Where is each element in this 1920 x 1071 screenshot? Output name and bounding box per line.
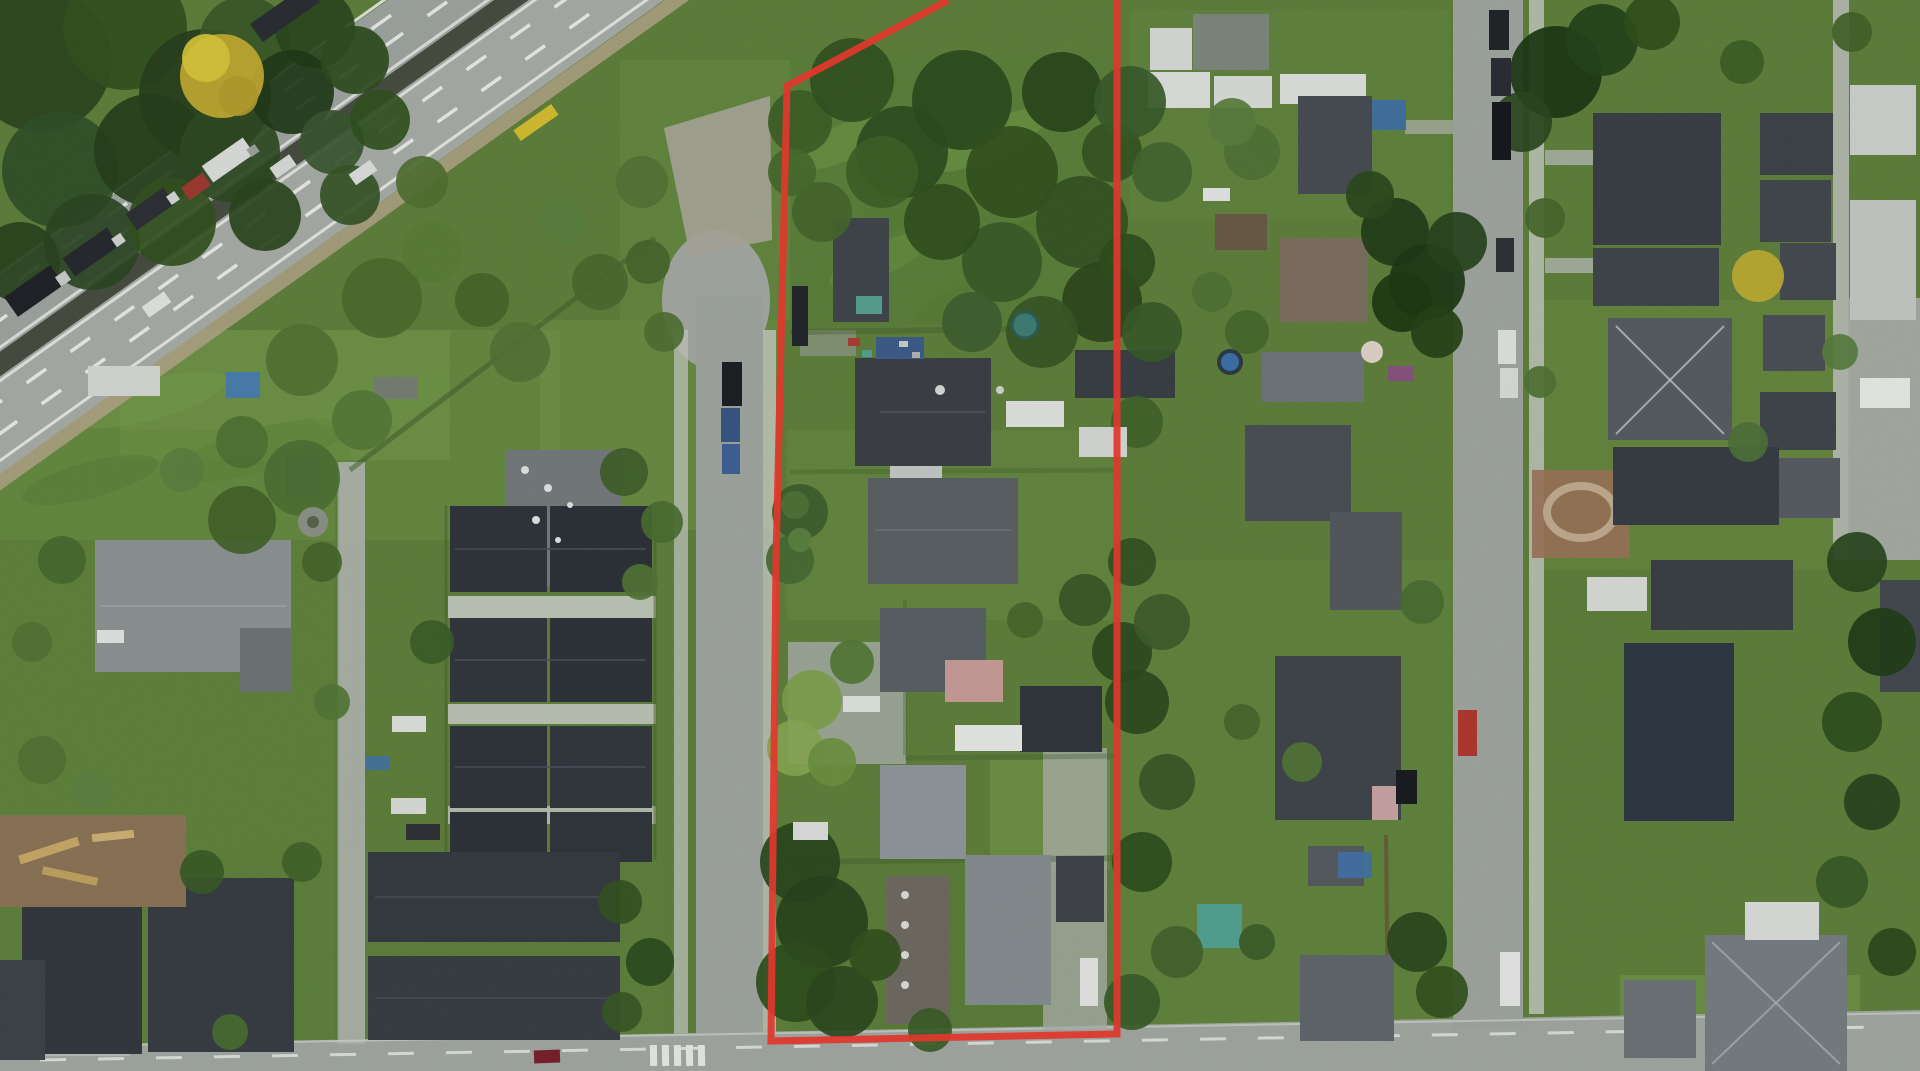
photo-grain-overlay [0, 0, 1920, 1071]
aerial-photo [0, 0, 1920, 1071]
aerial-photo-canvas [0, 0, 1920, 1071]
